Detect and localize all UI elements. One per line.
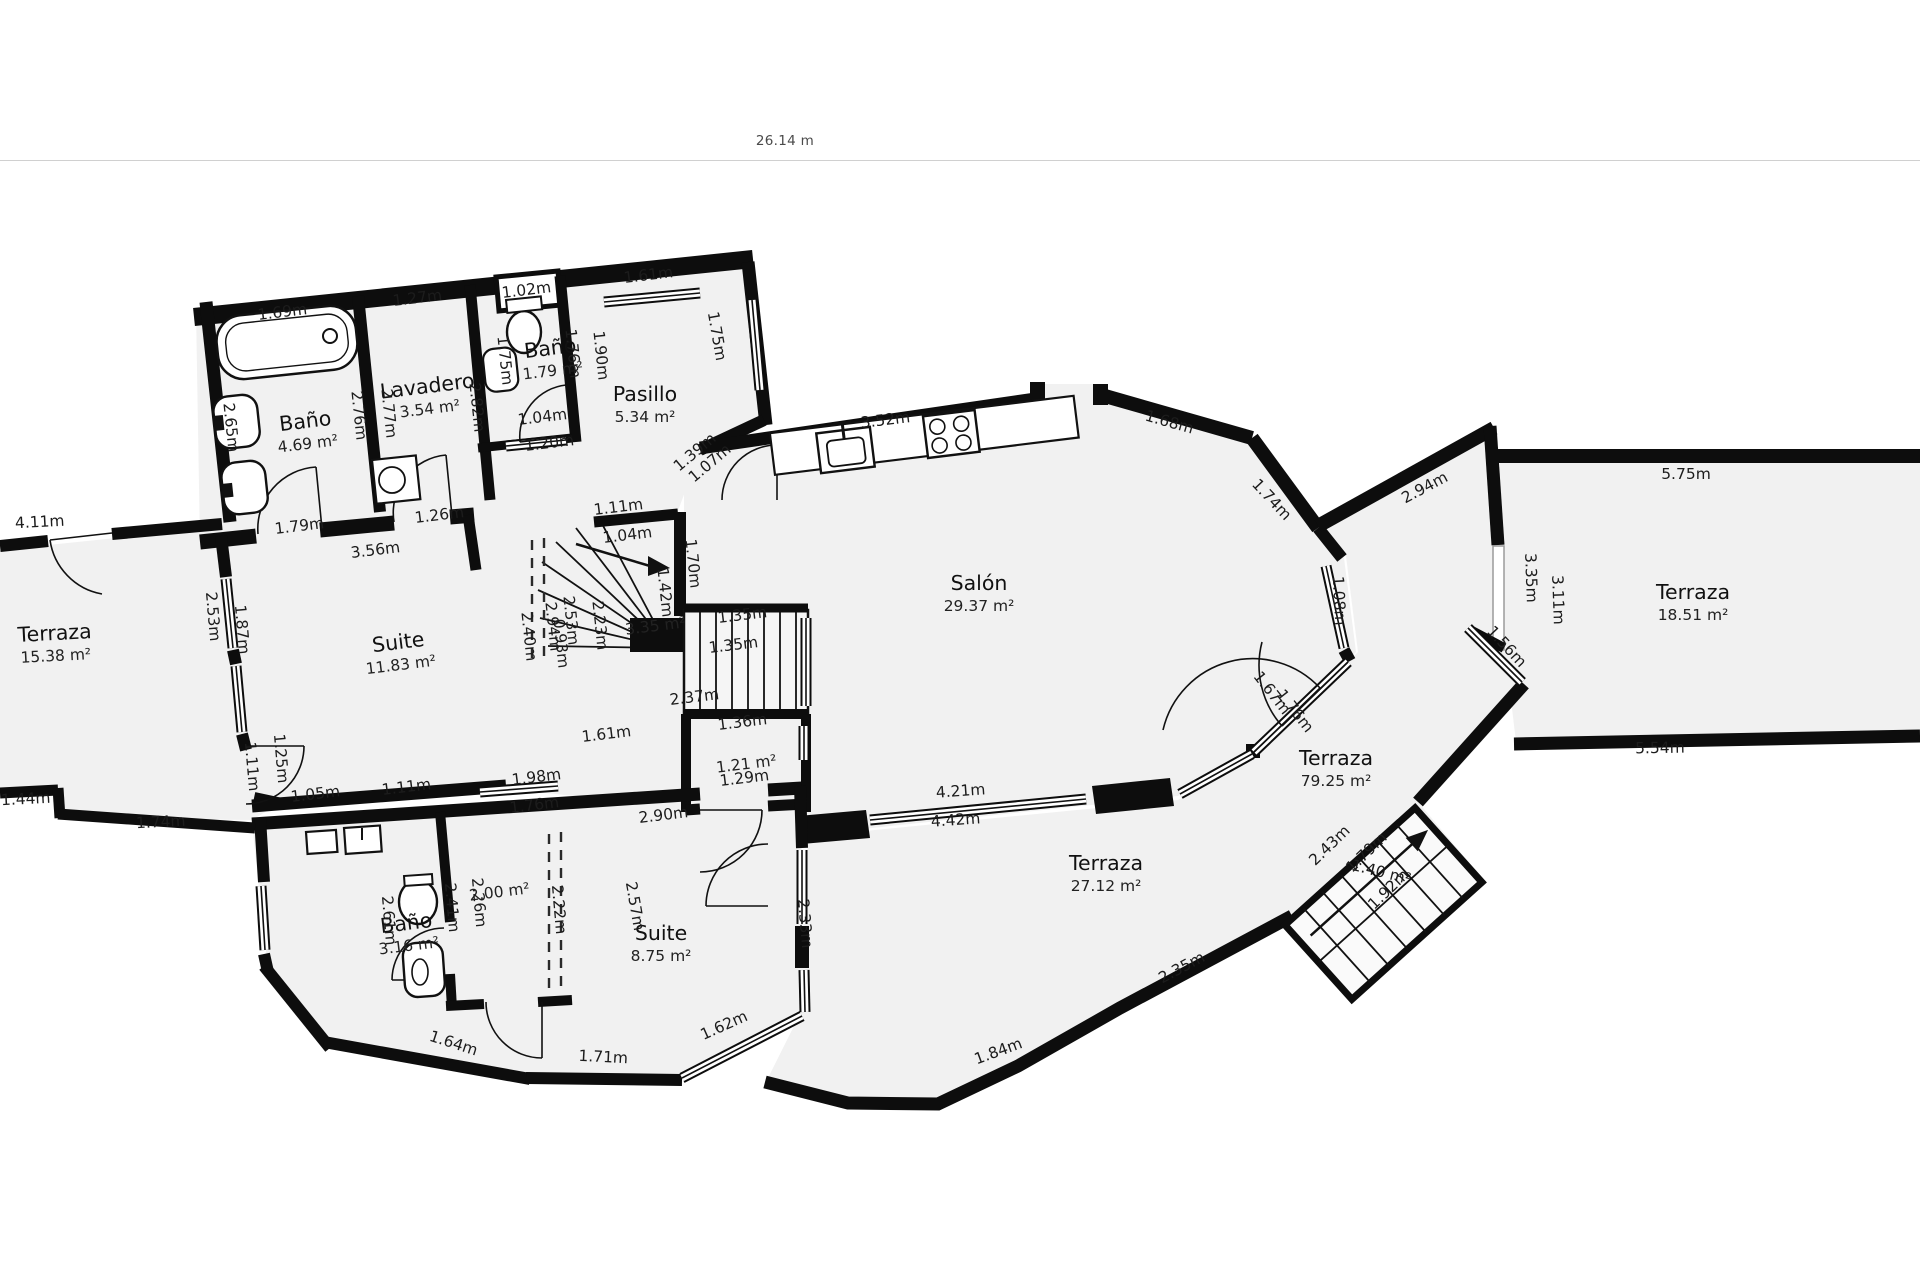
measurement-label: 1.08m [1329, 575, 1350, 625]
measurement-label: 1.71m [578, 1047, 628, 1068]
room-area-label: 18.51 m² [1658, 606, 1729, 624]
room-label: Terraza [1655, 580, 1730, 604]
room-area-label: 27.12 m² [1071, 877, 1142, 895]
floor-plan: Baño4.69 m²Lavadero3.54 m²Baño1.79 m²Pas… [0, 0, 1920, 1280]
room-area-label: 79.25 m² [1301, 772, 1372, 790]
measurement-label: 4.21m [935, 780, 986, 801]
stove-icon [923, 410, 980, 458]
measurement-label: 3.35m [1521, 553, 1541, 603]
measurement-label: 5.75m [1661, 465, 1711, 483]
measurement-label: 1.74m [135, 812, 185, 833]
room-label: Terraza [16, 619, 92, 647]
room-label: Salón [951, 571, 1008, 595]
measurement-label: 5.54m [1635, 739, 1685, 758]
measurement-label: 3.11m [1548, 575, 1568, 625]
room-label: Terraza [1068, 851, 1143, 875]
room-label: Terraza [1298, 746, 1373, 770]
floor-fills [0, 258, 1920, 1106]
room-area-label: 5.34 m² [615, 408, 676, 426]
measurement-label: 1.44m [0, 789, 50, 810]
room-area-label: 15.38 m² [20, 645, 91, 667]
room-area-label: 29.37 m² [944, 597, 1015, 615]
measurement-label: 4.42m [930, 809, 981, 830]
room-area-label: 8.75 m² [631, 947, 692, 965]
room-label: Pasillo [613, 382, 677, 406]
toilet-icon [220, 459, 269, 515]
washer-icon [372, 455, 420, 503]
measurement-label: 4.11m [14, 512, 64, 533]
